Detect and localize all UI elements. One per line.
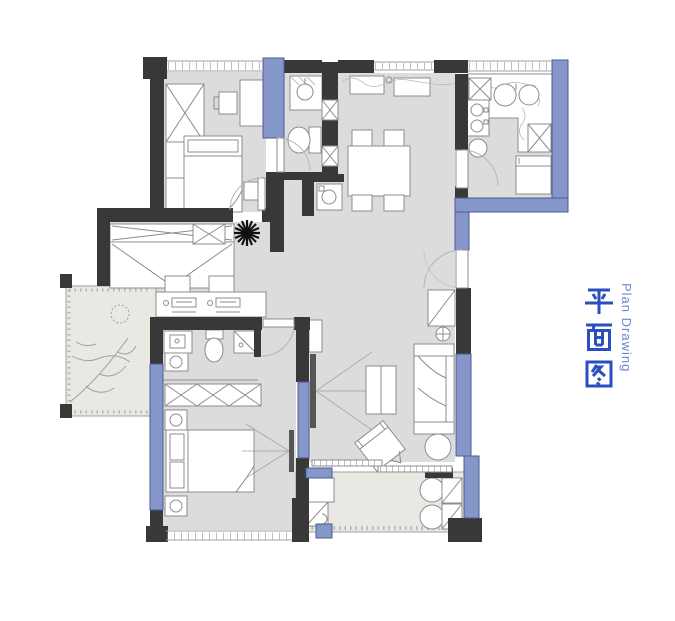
balcony-cabinet-2	[306, 502, 328, 526]
floor-plan-drawing: Plan Drawing	[0, 0, 675, 621]
washing-machine	[317, 184, 342, 210]
toilet	[288, 127, 321, 153]
washer	[165, 353, 188, 371]
wardrobe	[165, 384, 261, 406]
toilet	[205, 330, 223, 362]
nightstand-2	[165, 496, 187, 516]
side-table	[425, 434, 451, 460]
window-balcony-east	[464, 456, 479, 518]
side-cabinet	[428, 290, 455, 326]
nightstand	[165, 410, 187, 430]
window-kitchen-north	[468, 61, 552, 71]
laundry-niche	[317, 184, 342, 210]
plan-title-english: Plan Drawing	[619, 283, 634, 372]
single-bed	[184, 136, 242, 212]
wall-master-east-blue	[298, 382, 309, 458]
wall-entry-blue	[455, 212, 469, 250]
window-kitchen-south	[455, 198, 568, 212]
window-bedroom2-north	[167, 61, 262, 71]
balcony-west-floor	[66, 286, 156, 416]
duct-icon-2	[528, 124, 551, 152]
cooktop	[466, 100, 489, 136]
window-kitchen-east	[552, 60, 568, 210]
tv-cabinet	[309, 320, 322, 352]
window-master-south	[166, 531, 292, 540]
sofa	[414, 344, 454, 434]
coffee-table	[366, 366, 396, 414]
shower	[234, 331, 256, 353]
glyph-ping	[585, 290, 613, 314]
vanity	[290, 76, 322, 110]
floor-lamp	[436, 327, 450, 341]
glyph-tu	[587, 362, 611, 386]
window-master-west	[150, 364, 163, 510]
floor-plan-page: Plan Drawing 平面图	[0, 0, 675, 621]
glyph-mian	[586, 325, 612, 350]
balcony-lintel-blue	[306, 468, 332, 478]
cabinet-x	[193, 224, 225, 244]
window-bathroom-west	[263, 58, 284, 138]
balcony-cabinet	[308, 478, 334, 502]
balcony-post-blue	[316, 524, 332, 538]
window-living-east	[456, 354, 471, 456]
water-heater	[469, 139, 487, 157]
refrigerator	[516, 156, 551, 194]
double-bed	[166, 430, 254, 492]
vanity	[164, 331, 192, 353]
window-dining-north	[374, 62, 434, 70]
plan-title-chinese	[585, 290, 613, 386]
duct-icon	[469, 78, 491, 100]
